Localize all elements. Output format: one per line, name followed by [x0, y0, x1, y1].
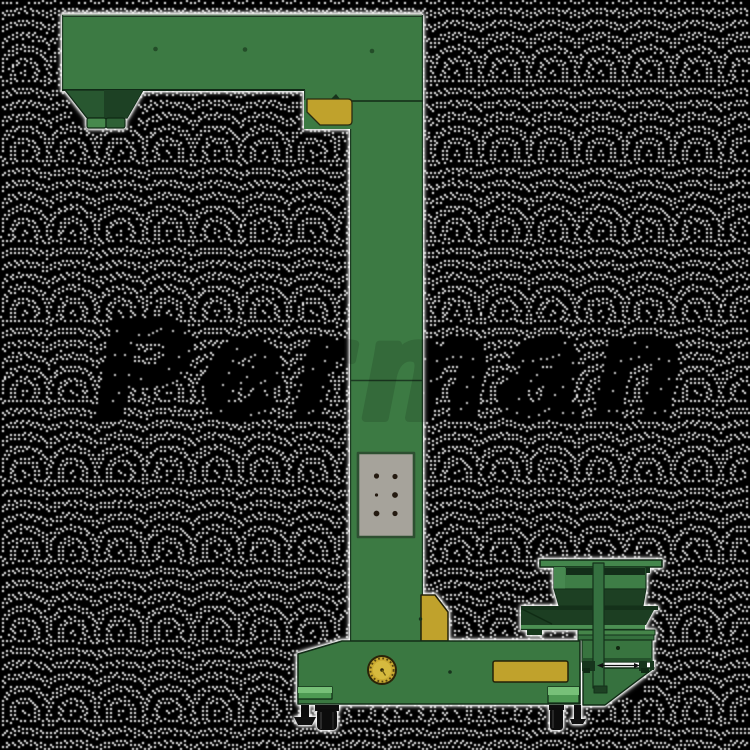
- svg-text:Perman: Perman: [96, 293, 692, 448]
